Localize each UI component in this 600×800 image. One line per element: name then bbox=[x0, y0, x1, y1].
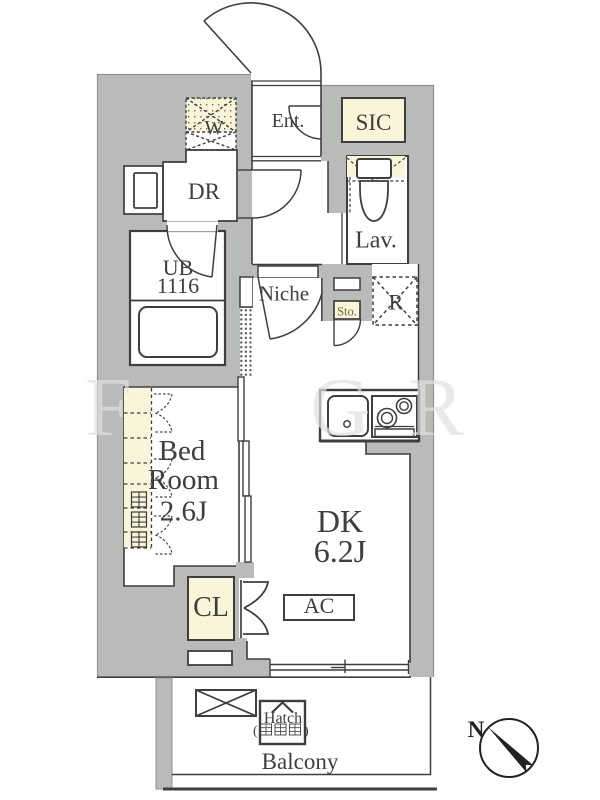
svg-text:R: R bbox=[389, 290, 404, 315]
svg-text:Sto.: Sto. bbox=[337, 305, 357, 319]
svg-text:R: R bbox=[408, 361, 464, 454]
svg-text:Room: Room bbox=[148, 464, 219, 496]
svg-text:Balcony: Balcony bbox=[262, 749, 339, 774]
svg-text:F: F bbox=[85, 361, 132, 454]
svg-text:Niche: Niche bbox=[259, 282, 309, 306]
svg-text:CL: CL bbox=[193, 592, 229, 623]
svg-text:Bed: Bed bbox=[159, 435, 206, 467]
svg-text:Ent.: Ent. bbox=[272, 110, 305, 132]
svg-text:): ) bbox=[304, 724, 309, 739]
svg-text:W: W bbox=[205, 117, 224, 139]
svg-text:6.2J: 6.2J bbox=[314, 533, 366, 569]
svg-text:G: G bbox=[310, 361, 371, 454]
svg-text:Lav.: Lav. bbox=[355, 228, 397, 254]
svg-text:SIC: SIC bbox=[356, 110, 392, 135]
svg-text:DR: DR bbox=[188, 179, 221, 204]
svg-text:(: ( bbox=[253, 724, 258, 739]
svg-text:1116: 1116 bbox=[157, 273, 199, 298]
svg-text:N: N bbox=[468, 717, 485, 742]
svg-text:2.6J: 2.6J bbox=[160, 496, 208, 528]
svg-text:Hatch: Hatch bbox=[264, 710, 302, 727]
svg-text:AC: AC bbox=[304, 593, 335, 618]
